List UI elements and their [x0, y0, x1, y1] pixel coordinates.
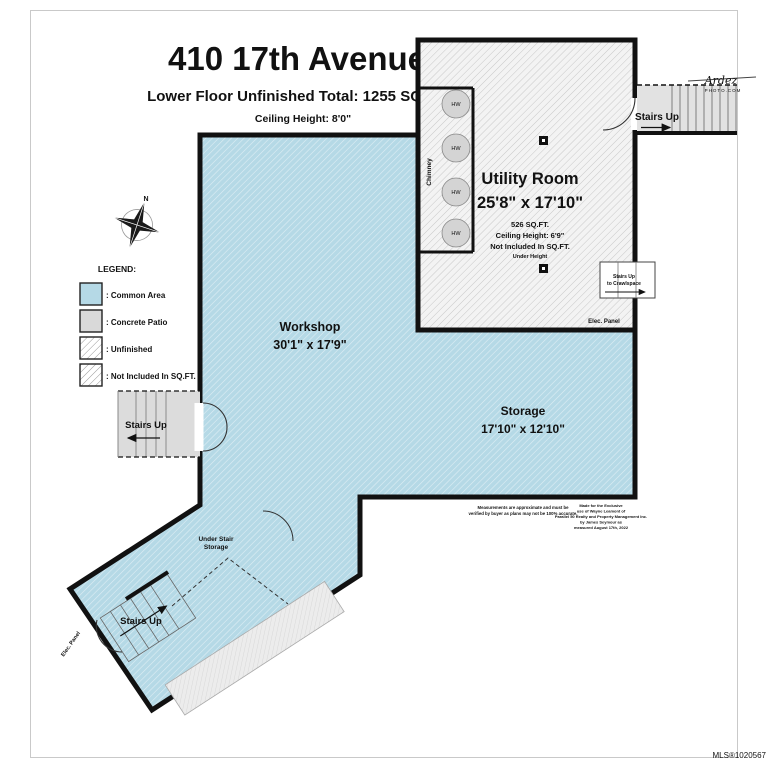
legend-label-unfinished: : Unfinished — [106, 345, 152, 354]
disclaimer-right-5: measured August 17th, 2022 — [574, 525, 629, 530]
watermark-brand: Ardez — [704, 74, 738, 87]
legend: LEGEND: : Common Area : Concrete Patio :… — [80, 264, 196, 386]
disclaimer-right-2: use of Wayne Leamont of — [577, 509, 626, 514]
disclaimer-right-3: Parallel 50 Realty and Property Manageme… — [555, 514, 647, 519]
patio-stairs-up-label: Stairs Up — [125, 420, 167, 431]
tr-stairs-up-label: Stairs Up — [635, 112, 679, 123]
legend-heading: LEGEND: — [98, 264, 136, 274]
page-title: 410 17th Avenue — [168, 40, 426, 77]
storage-dims: 17'10" x 12'10" — [481, 422, 565, 436]
ceiling-height-label: Ceiling Height: 8'0" — [255, 113, 351, 125]
compass-north-label: N — [143, 196, 148, 203]
mls-number: MLS®1020567 — [713, 751, 767, 760]
legend-label-concrete-patio: : Concrete Patio — [106, 318, 167, 327]
utility-room-dims: 25'8" x 17'10" — [477, 194, 583, 212]
utility-room-name: Utility Room — [481, 170, 578, 188]
utility-room-ceiling: Ceiling Height: 6'9" — [496, 231, 565, 240]
legend-swatch-not-included — [80, 364, 102, 386]
hw-label: HW — [451, 146, 461, 152]
watermark-domain: PHOTO.COM — [705, 88, 742, 93]
utility-room-note: Not Included In SQ.FT. — [490, 242, 570, 251]
crawl-stairs-label-1: Stairs Up — [613, 274, 635, 280]
hw-label: HW — [451, 190, 461, 196]
crawlspace-stairs: Stairs Up to Crawlspace — [600, 262, 655, 298]
page-subtitle: Lower Floor Unfinished Total: 1255 SQ.FT… — [147, 88, 447, 105]
compass-icon: N — [107, 195, 167, 255]
hw-label: HW — [451, 102, 461, 108]
post-icon-center — [542, 139, 545, 142]
disclaimer-right-4: by James Seymour as — [580, 520, 623, 525]
workshop-name: Workshop — [280, 320, 341, 334]
elec-panel-label: Elec. Panel — [588, 319, 620, 325]
wing-elec-panel-label: Elec. Panel — [60, 630, 82, 658]
under-stair-label-2: Storage — [204, 544, 229, 551]
post-icon-center — [542, 267, 545, 270]
legend-label-not-included: : Not Included In SQ.FT. — [106, 372, 196, 381]
storage-name: Storage — [501, 404, 546, 418]
workshop-dims: 30'1" x 17'9" — [273, 338, 346, 352]
hw-label: HW — [451, 231, 461, 237]
disclaimer-block: Measurements are approximate and must be… — [469, 503, 648, 530]
legend-swatch-unfinished — [80, 337, 102, 359]
left-patio-stairs: Stairs Up — [118, 391, 200, 457]
left-wall-door-gap — [195, 403, 204, 451]
chimney-label: Chimney — [426, 158, 433, 186]
disclaimer-left-1: Measurements are approximate and must be — [478, 505, 570, 510]
floorplan-page: 410 17th Avenue Lower Floor Unfinished T… — [0, 0, 768, 768]
legend-label-common-area: : Common Area — [106, 291, 166, 300]
under-stair-label-1: Under Stair — [198, 536, 234, 543]
crawl-stairs-label-2: to Crawlspace — [607, 281, 641, 287]
wing-stairs-up-label: Stairs Up — [120, 616, 162, 627]
legend-swatch-common-area — [80, 283, 102, 305]
disclaimer-right-1: Made for the Exclusive — [579, 503, 623, 508]
floorplan-svg: 410 17th Avenue Lower Floor Unfinished T… — [0, 0, 768, 768]
utility-room-area: 526 SQ.FT. — [511, 220, 549, 229]
legend-swatch-concrete-patio — [80, 310, 102, 332]
title-block: 410 17th Avenue Lower Floor Unfinished T… — [147, 40, 447, 125]
utility-room-subnote: Under Height — [513, 254, 548, 260]
